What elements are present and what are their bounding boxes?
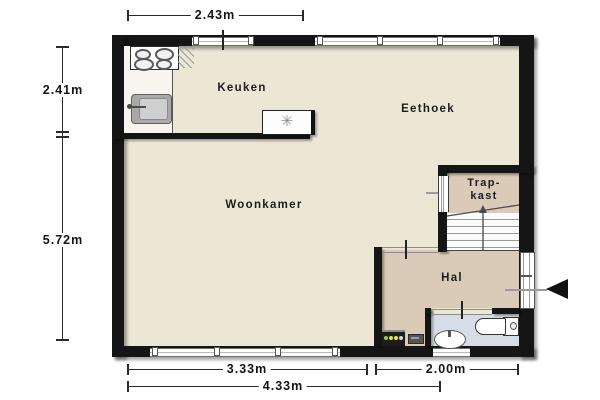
room-label-woonkamer: Woonkamer (225, 199, 302, 211)
window-dining-mullion-2 (377, 36, 383, 45)
window-dining (315, 37, 500, 46)
entrance-arrow-icon (546, 279, 568, 299)
wall-trapkast-left-lower (438, 212, 447, 252)
room-label-trapkast-line1: Trap- (467, 177, 500, 190)
sink-icon (131, 94, 172, 124)
dimension-left-upper-label: 2.41m (39, 83, 87, 97)
dimension-left-lower-label: 5.72m (39, 233, 87, 247)
dimension-left-tick-bottom (56, 339, 69, 341)
dimension-bottom-total-tick-b (439, 381, 441, 392)
trapkast-door-swing-line (426, 192, 438, 194)
window-kitchen-mullion-post (222, 30, 224, 50)
front-door (520, 252, 535, 309)
dimension-left-tick-top (56, 46, 69, 48)
window-dining-mullion-3 (437, 36, 443, 45)
room-label-keuken: Keuken (217, 82, 266, 94)
window-kitchen-jamb-left (193, 36, 199, 45)
dimension-bottom-total-tick-a (127, 381, 129, 392)
window-living-mullion-4 (332, 347, 338, 356)
window-living-mullion-1 (152, 347, 158, 356)
window-living-mullion-2 (214, 347, 220, 356)
opening-hal-bathroom-tick (461, 301, 463, 319)
opening-woonkamer-hal (382, 247, 438, 253)
meter-cabinet-icon (382, 330, 405, 346)
window-dining-mullion-4 (493, 36, 499, 45)
front-door-swing-line (505, 289, 547, 291)
window-living (150, 348, 340, 357)
floor-plan-canvas: ✳ Keuken Eethoek Woonkamer Hal Trap- kas… (0, 0, 600, 400)
dimension-bottom-right-tick-b (517, 364, 519, 375)
room-label-trapkast: Trap- kast (467, 177, 500, 203)
window-dining-mullion-1 (317, 36, 323, 45)
wall-trapkast-left-upper (438, 165, 447, 176)
window-bathroom (433, 348, 470, 357)
dimension-top-tick-right (302, 10, 304, 21)
dimension-bottom-left-tick-a (127, 364, 129, 375)
wall-left (112, 35, 124, 357)
window-kitchen-jamb-right (248, 36, 254, 45)
counter-corner-hatch (178, 46, 194, 68)
window-living-mullion-3 (275, 347, 281, 356)
room-label-trapkast-line2: kast (467, 190, 500, 203)
dimension-top-label: 2.43m (191, 8, 239, 22)
staircase-direction-arrow-icon (447, 200, 519, 252)
ventilation-icon: ✳ (281, 113, 294, 130)
wall-hal-left (374, 247, 382, 346)
wall-trapkast-top (438, 165, 534, 173)
dimension-bottom-right-label: 2.00m (422, 362, 470, 376)
dimension-bottom-left-label: 3.33m (223, 362, 271, 376)
room-label-hal: Hal (441, 272, 463, 284)
room-label-eethoek: Eethoek (401, 103, 455, 115)
dimension-left-tick-mid2 (56, 136, 69, 138)
dimension-left-tick-mid1 (56, 131, 69, 133)
stove-icon (130, 46, 179, 70)
ventilation-box: ✳ (262, 110, 315, 135)
washbasin-icon (434, 330, 466, 349)
dimension-bottom-left-tick-b (366, 364, 368, 375)
dimension-bottom-total-label: 4.33m (259, 379, 307, 393)
wall-bathroom-top-right (492, 308, 519, 314)
trapkast-door (438, 176, 449, 212)
opening-woonkamer-hal-tick (405, 240, 407, 259)
dimension-bottom-right-tick-a (375, 364, 377, 375)
dimension-top-tick-left (127, 10, 129, 21)
meter-cabinet-side-box (408, 334, 424, 344)
